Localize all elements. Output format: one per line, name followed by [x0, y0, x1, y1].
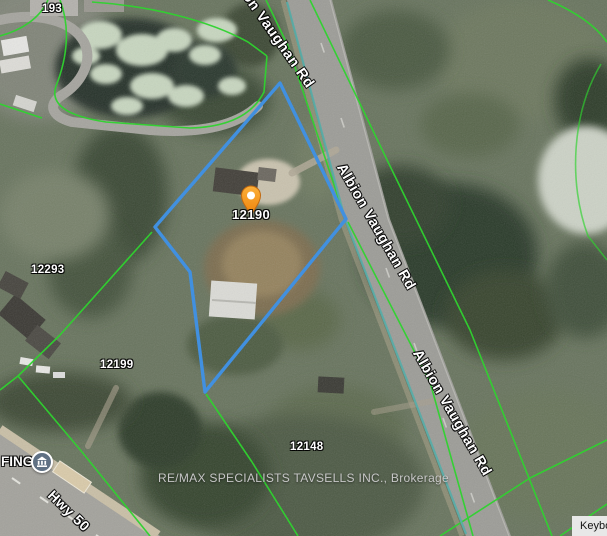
poi-marker[interactable]: [31, 451, 53, 473]
satellite-imagery: [0, 0, 607, 536]
satellite-map-viewport[interactable]: Albion Vaughan Rd Albion Vaughan Rd Albi…: [0, 0, 607, 536]
keyboard-shortcuts-button[interactable]: Keybo: [572, 516, 607, 536]
civic-building-icon: [36, 456, 48, 468]
property-pin[interactable]: [238, 184, 264, 218]
